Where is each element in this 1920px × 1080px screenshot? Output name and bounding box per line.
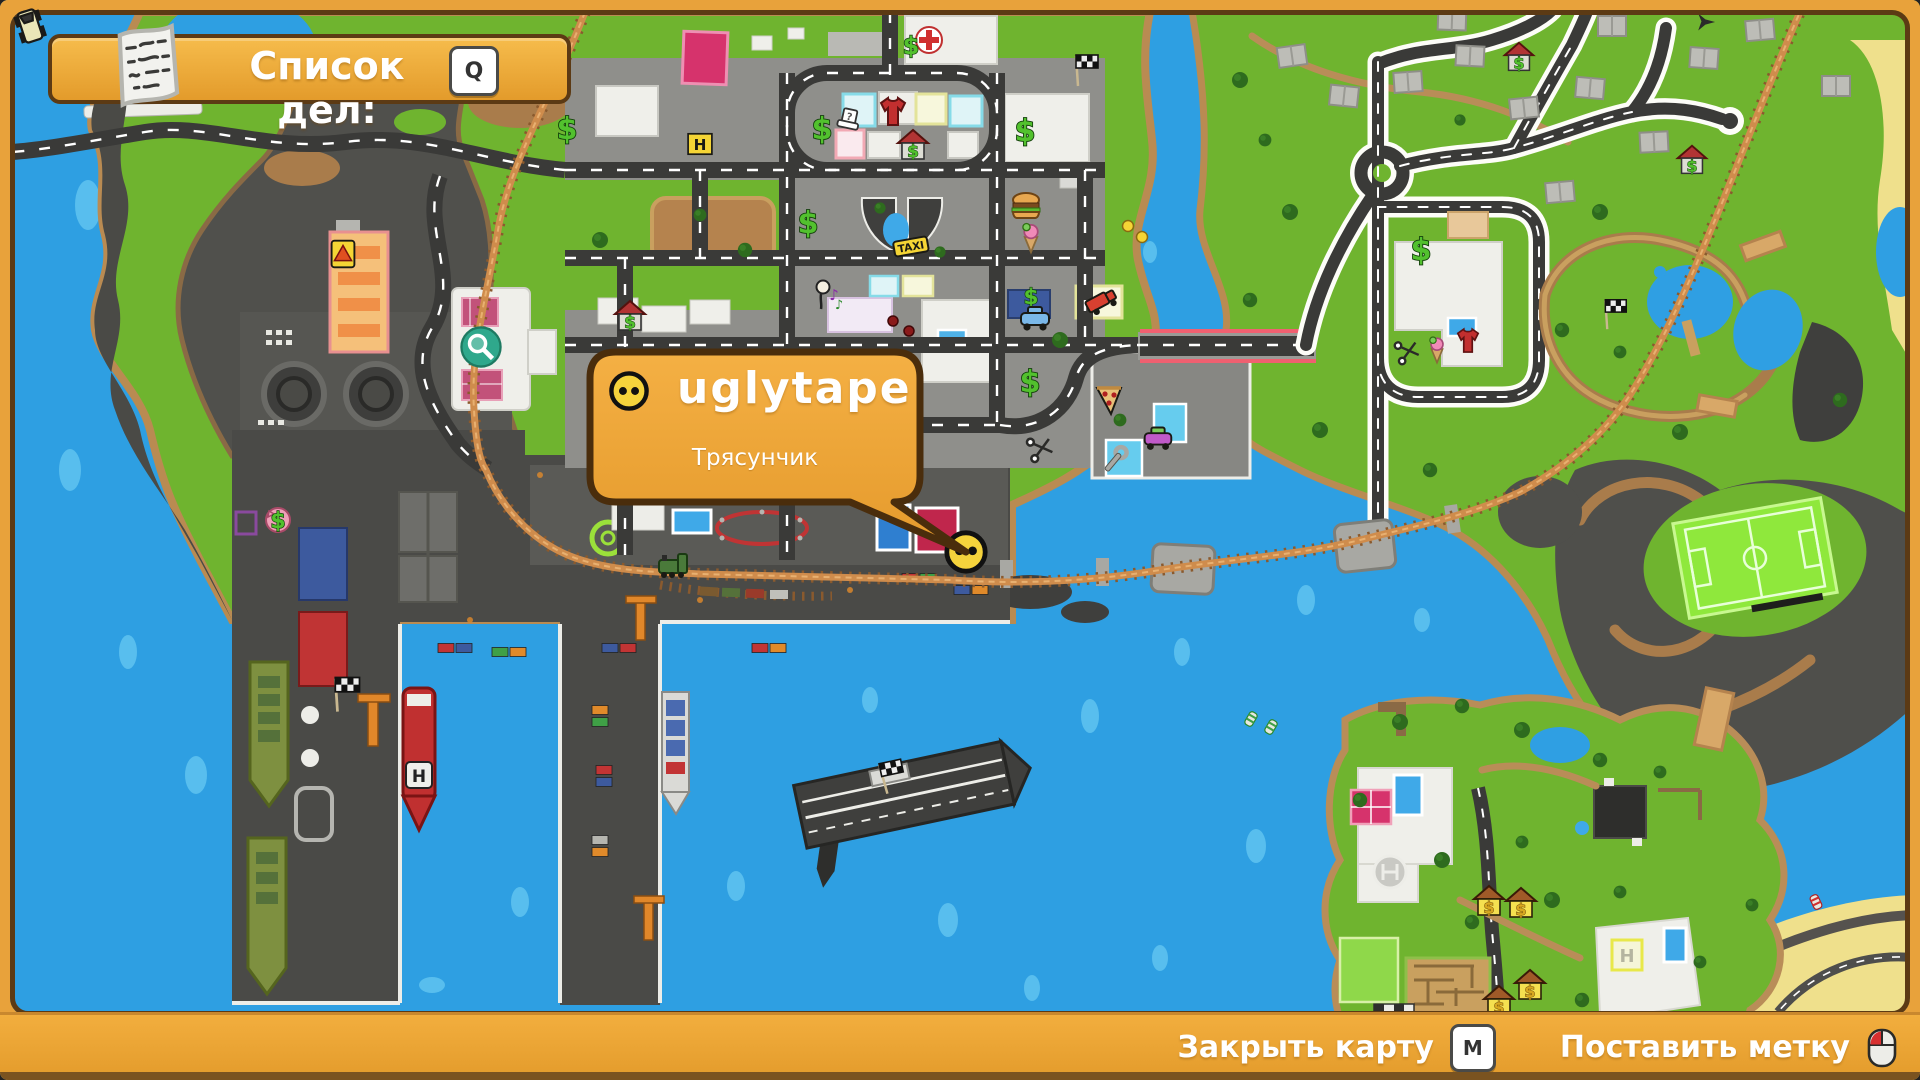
todo-key-hint: Q: [449, 46, 499, 96]
close-map-label: Закрыть карту: [1178, 1030, 1434, 1065]
svg-text:H: H: [412, 767, 426, 787]
mouse-icon: [1866, 1027, 1898, 1069]
player-tooltip: uglytape Трясунчик: [585, 345, 985, 575]
cargo-ship-green: [250, 662, 288, 806]
game-map-screen: H: [0, 0, 1920, 1080]
container-ship-blue: [662, 692, 689, 814]
place-marker-label: Поставить метку: [1560, 1030, 1850, 1065]
bottom-hint-bar: Закрыть карту M Поставить метку: [0, 1012, 1920, 1080]
todo-list-title: Список дел:: [202, 44, 452, 132]
close-map-key-hint: M: [1450, 1024, 1496, 1072]
smiley-face-icon: [607, 369, 651, 413]
cargo-ship-green-2: [248, 838, 286, 994]
player-name: uglytape: [677, 363, 912, 414]
note-paper-icon: [99, 19, 193, 115]
place-marker-hint[interactable]: Поставить метку: [1560, 1027, 1898, 1069]
todo-list-banner[interactable]: Список дел: Q: [48, 34, 571, 104]
island-mansion: H: [1325, 688, 1784, 1045]
close-map-hint[interactable]: Закрыть карту M: [1178, 1024, 1496, 1072]
tanker-ship-red: H: [403, 688, 435, 830]
svg-text:H: H: [1619, 946, 1634, 967]
player-vehicle-label: Трясунчик: [590, 445, 920, 471]
